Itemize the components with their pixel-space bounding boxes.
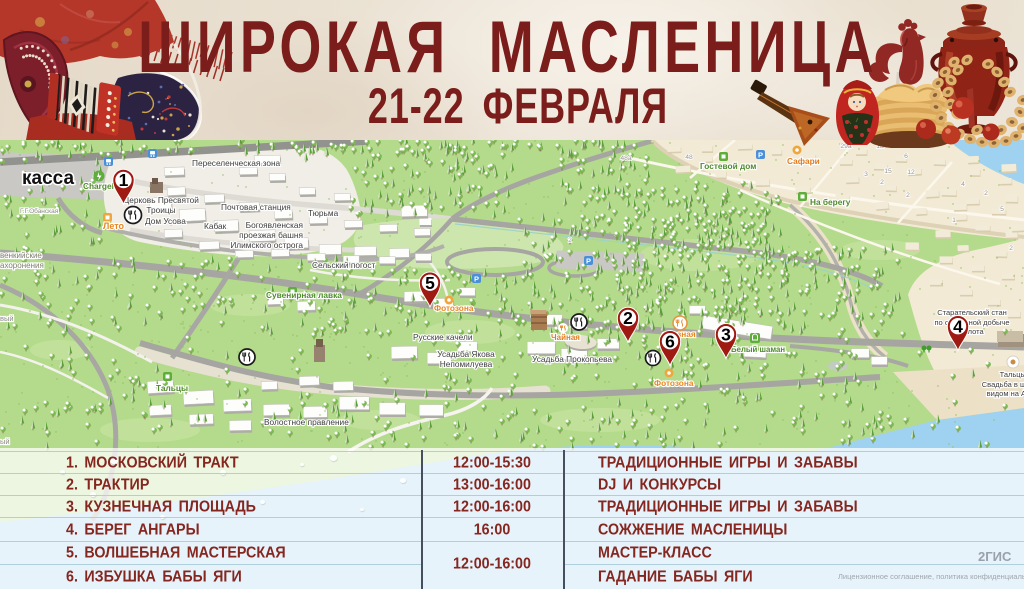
svg-text:Чайная: Чайная [551,333,580,342]
svg-text:4: 4 [961,181,965,188]
svg-text:Переселенческая зона: Переселенческая зона [192,158,281,168]
svg-text:проезжая башня: проезжая башня [239,230,303,240]
svg-text:Дом Усова: Дом Усова [145,216,186,226]
svg-text:Сафари: Сафари [787,156,820,166]
svg-text:касса: касса [22,168,74,189]
svg-text:2: 2 [880,179,884,186]
svg-text:Усадьба Якова: Усадьба Якова [437,349,495,359]
svg-text:Непомилуева: Непомилуева [440,359,493,369]
svg-text:Фотозона: Фотозона [654,378,694,388]
svg-text:P: P [758,150,763,159]
svg-text:5: 5 [1000,206,1004,213]
svg-text:Сувенирная лавка: Сувенирная лавка [266,290,342,300]
svg-text:2: 2 [568,237,572,244]
svg-text:Усадьба Прокопьева: Усадьба Прокопьева [532,354,612,364]
svg-text:ый: ый [0,437,10,446]
svg-text:венкийские: венкийские [0,251,42,260]
svg-text:P: P [474,274,479,283]
svg-text:Сельский погост: Сельский погост [312,260,376,270]
svg-text:На берегу: На берегу [810,197,851,207]
svg-text:2: 2 [984,190,988,197]
svg-text:Троицы: Троицы [146,205,175,215]
svg-text:1: 1 [119,170,129,190]
svg-text:Тюрьма: Тюрьма [308,208,339,218]
svg-text:2: 2 [623,308,633,328]
svg-text:Кабак: Кабак [204,221,227,231]
svg-text:Лето: Лето [103,221,124,231]
svg-text:48: 48 [685,154,693,161]
svg-text:вый: вый [0,314,14,323]
svg-text:Г.Г.Обанская: Г.Г.Обанская [20,207,59,215]
svg-text:по старинной добыче: по старинной добыче [935,318,1010,327]
svg-text:ахоронения: ахоронения [0,261,44,270]
svg-text:Церковь Пресвятой: Церковь Пресвятой [123,195,199,205]
svg-text:Белый шаман: Белый шаман [731,345,785,354]
svg-text:1: 1 [952,217,956,224]
svg-text:Гостевой дом: Гостевой дом [700,161,756,171]
svg-text:3: 3 [721,324,731,344]
svg-text:Фотозона: Фотозона [434,303,474,313]
svg-text:6: 6 [904,153,908,160]
svg-text:2: 2 [1009,245,1013,252]
svg-text:4: 4 [953,316,963,336]
svg-text:Свадьба в ш: Свадьба в ш [982,380,1024,389]
svg-text:Тальцы: Тальцы [1000,370,1024,379]
svg-text:Почтовая станция: Почтовая станция [221,202,291,212]
svg-text:Русские качели: Русские качели [413,332,473,342]
svg-text:2: 2 [906,192,910,199]
svg-text:Илимского острога: Илимского острога [230,240,303,250]
svg-text:Тальцы: Тальцы [156,383,188,393]
svg-text:3: 3 [864,171,868,178]
svg-text:6: 6 [665,331,675,351]
svg-text:Волостное правление: Волостное правление [264,417,349,427]
svg-text:12: 12 [907,169,915,176]
svg-text:48а: 48а [620,155,632,162]
svg-text:видом на А: видом на А [987,389,1024,398]
svg-text:P: P [586,256,591,265]
svg-text:Богоявленская: Богоявленская [246,220,303,230]
svg-text:5: 5 [425,273,435,293]
svg-text:Старательский стан: Старательский стан [937,308,1007,317]
svg-text:15: 15 [884,168,892,175]
